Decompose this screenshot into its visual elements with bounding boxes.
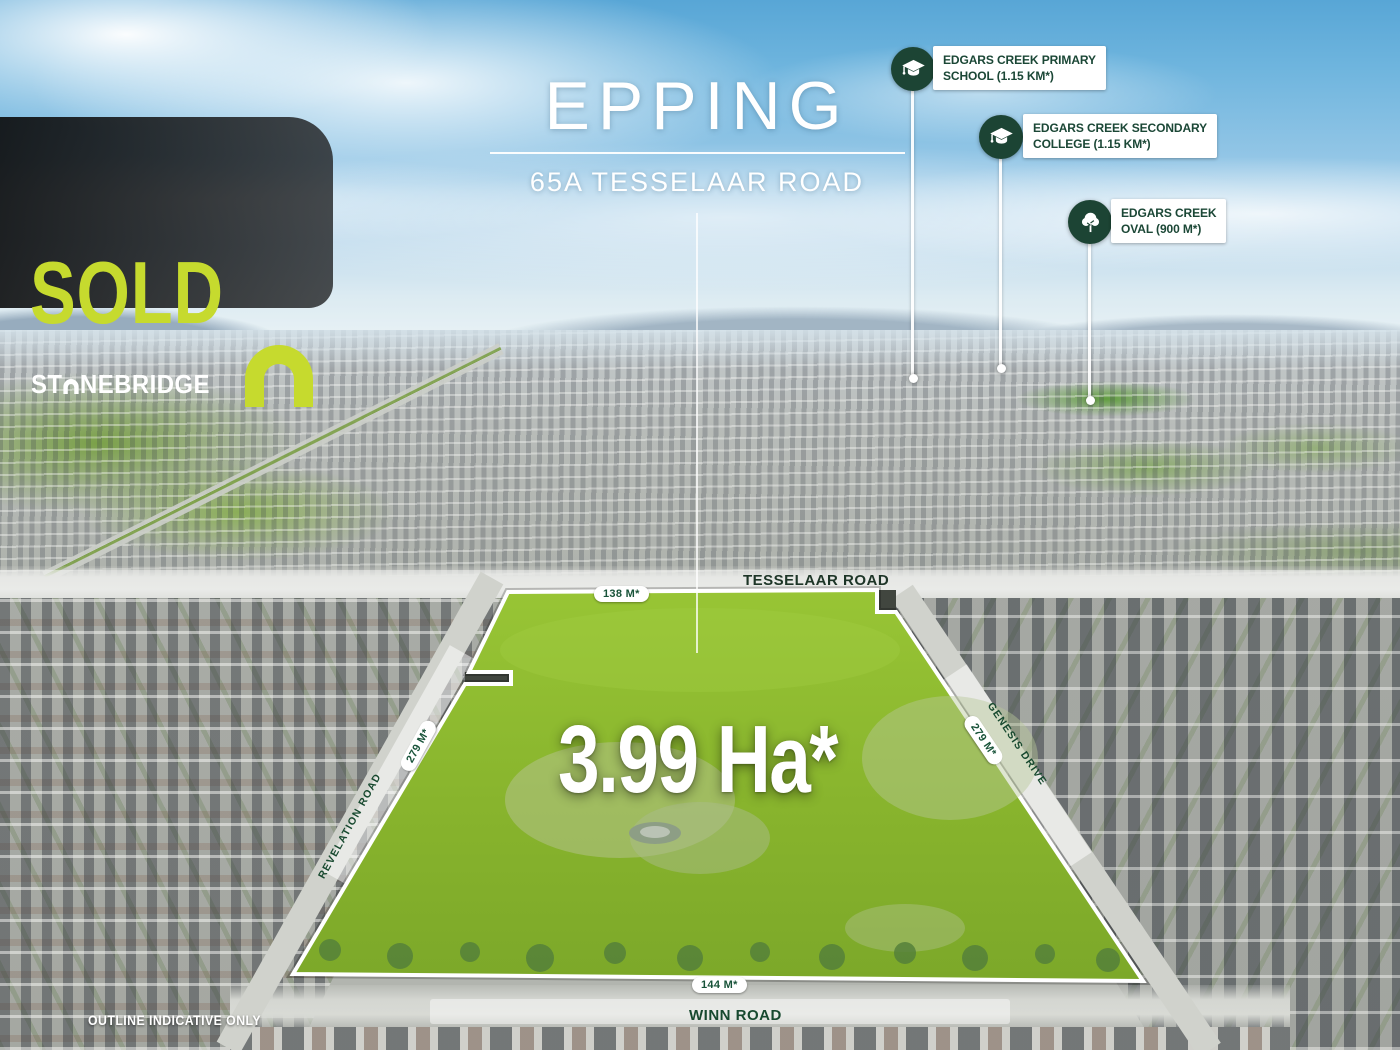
outline-disclaimer: OUTLINE INDICATIVE ONLY bbox=[88, 1012, 261, 1028]
graduation-cap-icon bbox=[900, 56, 927, 83]
arch-o-glyph bbox=[63, 379, 79, 394]
oval-label: EDGARS CREEK OVAL (900 M*) bbox=[1111, 199, 1226, 243]
callout-line2: COLLEGE (1.15 KM*) bbox=[1033, 136, 1207, 152]
primary-school-label: EDGARS CREEK PRIMARY SCHOOL (1.15 KM*) bbox=[933, 46, 1106, 90]
land-area-label: 3.99 Ha* bbox=[558, 712, 837, 808]
secondary-college-stem bbox=[999, 157, 1002, 368]
primary-school-stem bbox=[911, 89, 914, 376]
scrub-patch bbox=[862, 696, 1038, 820]
secondary-college-dot bbox=[997, 364, 1006, 373]
stonebridge-arch-logo bbox=[245, 345, 313, 407]
callout-line1: EDGARS CREEK bbox=[1121, 205, 1216, 221]
callout-line2: SCHOOL (1.15 KM*) bbox=[943, 68, 1096, 84]
measurement-north: 138 M* bbox=[594, 586, 649, 602]
graduation-cap-icon bbox=[988, 124, 1015, 151]
callout-line2: OVAL (900 M*) bbox=[1121, 221, 1216, 237]
primary-school-marker bbox=[891, 47, 935, 91]
stonebridge-wordmark: STNEBRIDGE bbox=[31, 369, 210, 400]
brand-text-prefix: ST bbox=[31, 369, 62, 399]
tree-icon bbox=[1077, 209, 1104, 236]
sold-banner: SOLD STNEBRIDGE bbox=[0, 117, 333, 308]
secondary-college-label: EDGARS CREEK SECONDARY COLLEGE (1.15 KM*… bbox=[1023, 114, 1217, 158]
callout-line1: EDGARS CREEK PRIMARY bbox=[943, 52, 1096, 68]
oval-stem bbox=[1088, 242, 1091, 400]
address-subtitle: 65A TESSELAAR ROAD bbox=[347, 167, 1047, 198]
brand-text-suffix: NEBRIDGE bbox=[80, 369, 210, 399]
road-label-winn: WINN ROAD bbox=[689, 1007, 782, 1024]
pond-water bbox=[640, 826, 670, 838]
oval-dot bbox=[1086, 396, 1095, 405]
aerial-property-photo: SOLD STNEBRIDGE EPPING 65A TESSELAAR ROA… bbox=[0, 0, 1400, 1050]
address-pointer-line bbox=[696, 213, 698, 653]
secondary-college-marker bbox=[979, 115, 1023, 159]
oval-marker bbox=[1068, 200, 1112, 244]
listing-header: EPPING 65A TESSELAAR ROAD bbox=[347, 72, 1047, 198]
primary-school-dot bbox=[909, 374, 918, 383]
measurement-south: 144 M* bbox=[692, 977, 747, 993]
callout-line1: EDGARS CREEK SECONDARY bbox=[1033, 120, 1207, 136]
sold-status-label: SOLD bbox=[30, 249, 224, 337]
title-divider bbox=[490, 152, 905, 154]
grass-patch bbox=[500, 608, 900, 692]
road-label-tesselaar: TESSELAAR ROAD bbox=[743, 572, 889, 589]
